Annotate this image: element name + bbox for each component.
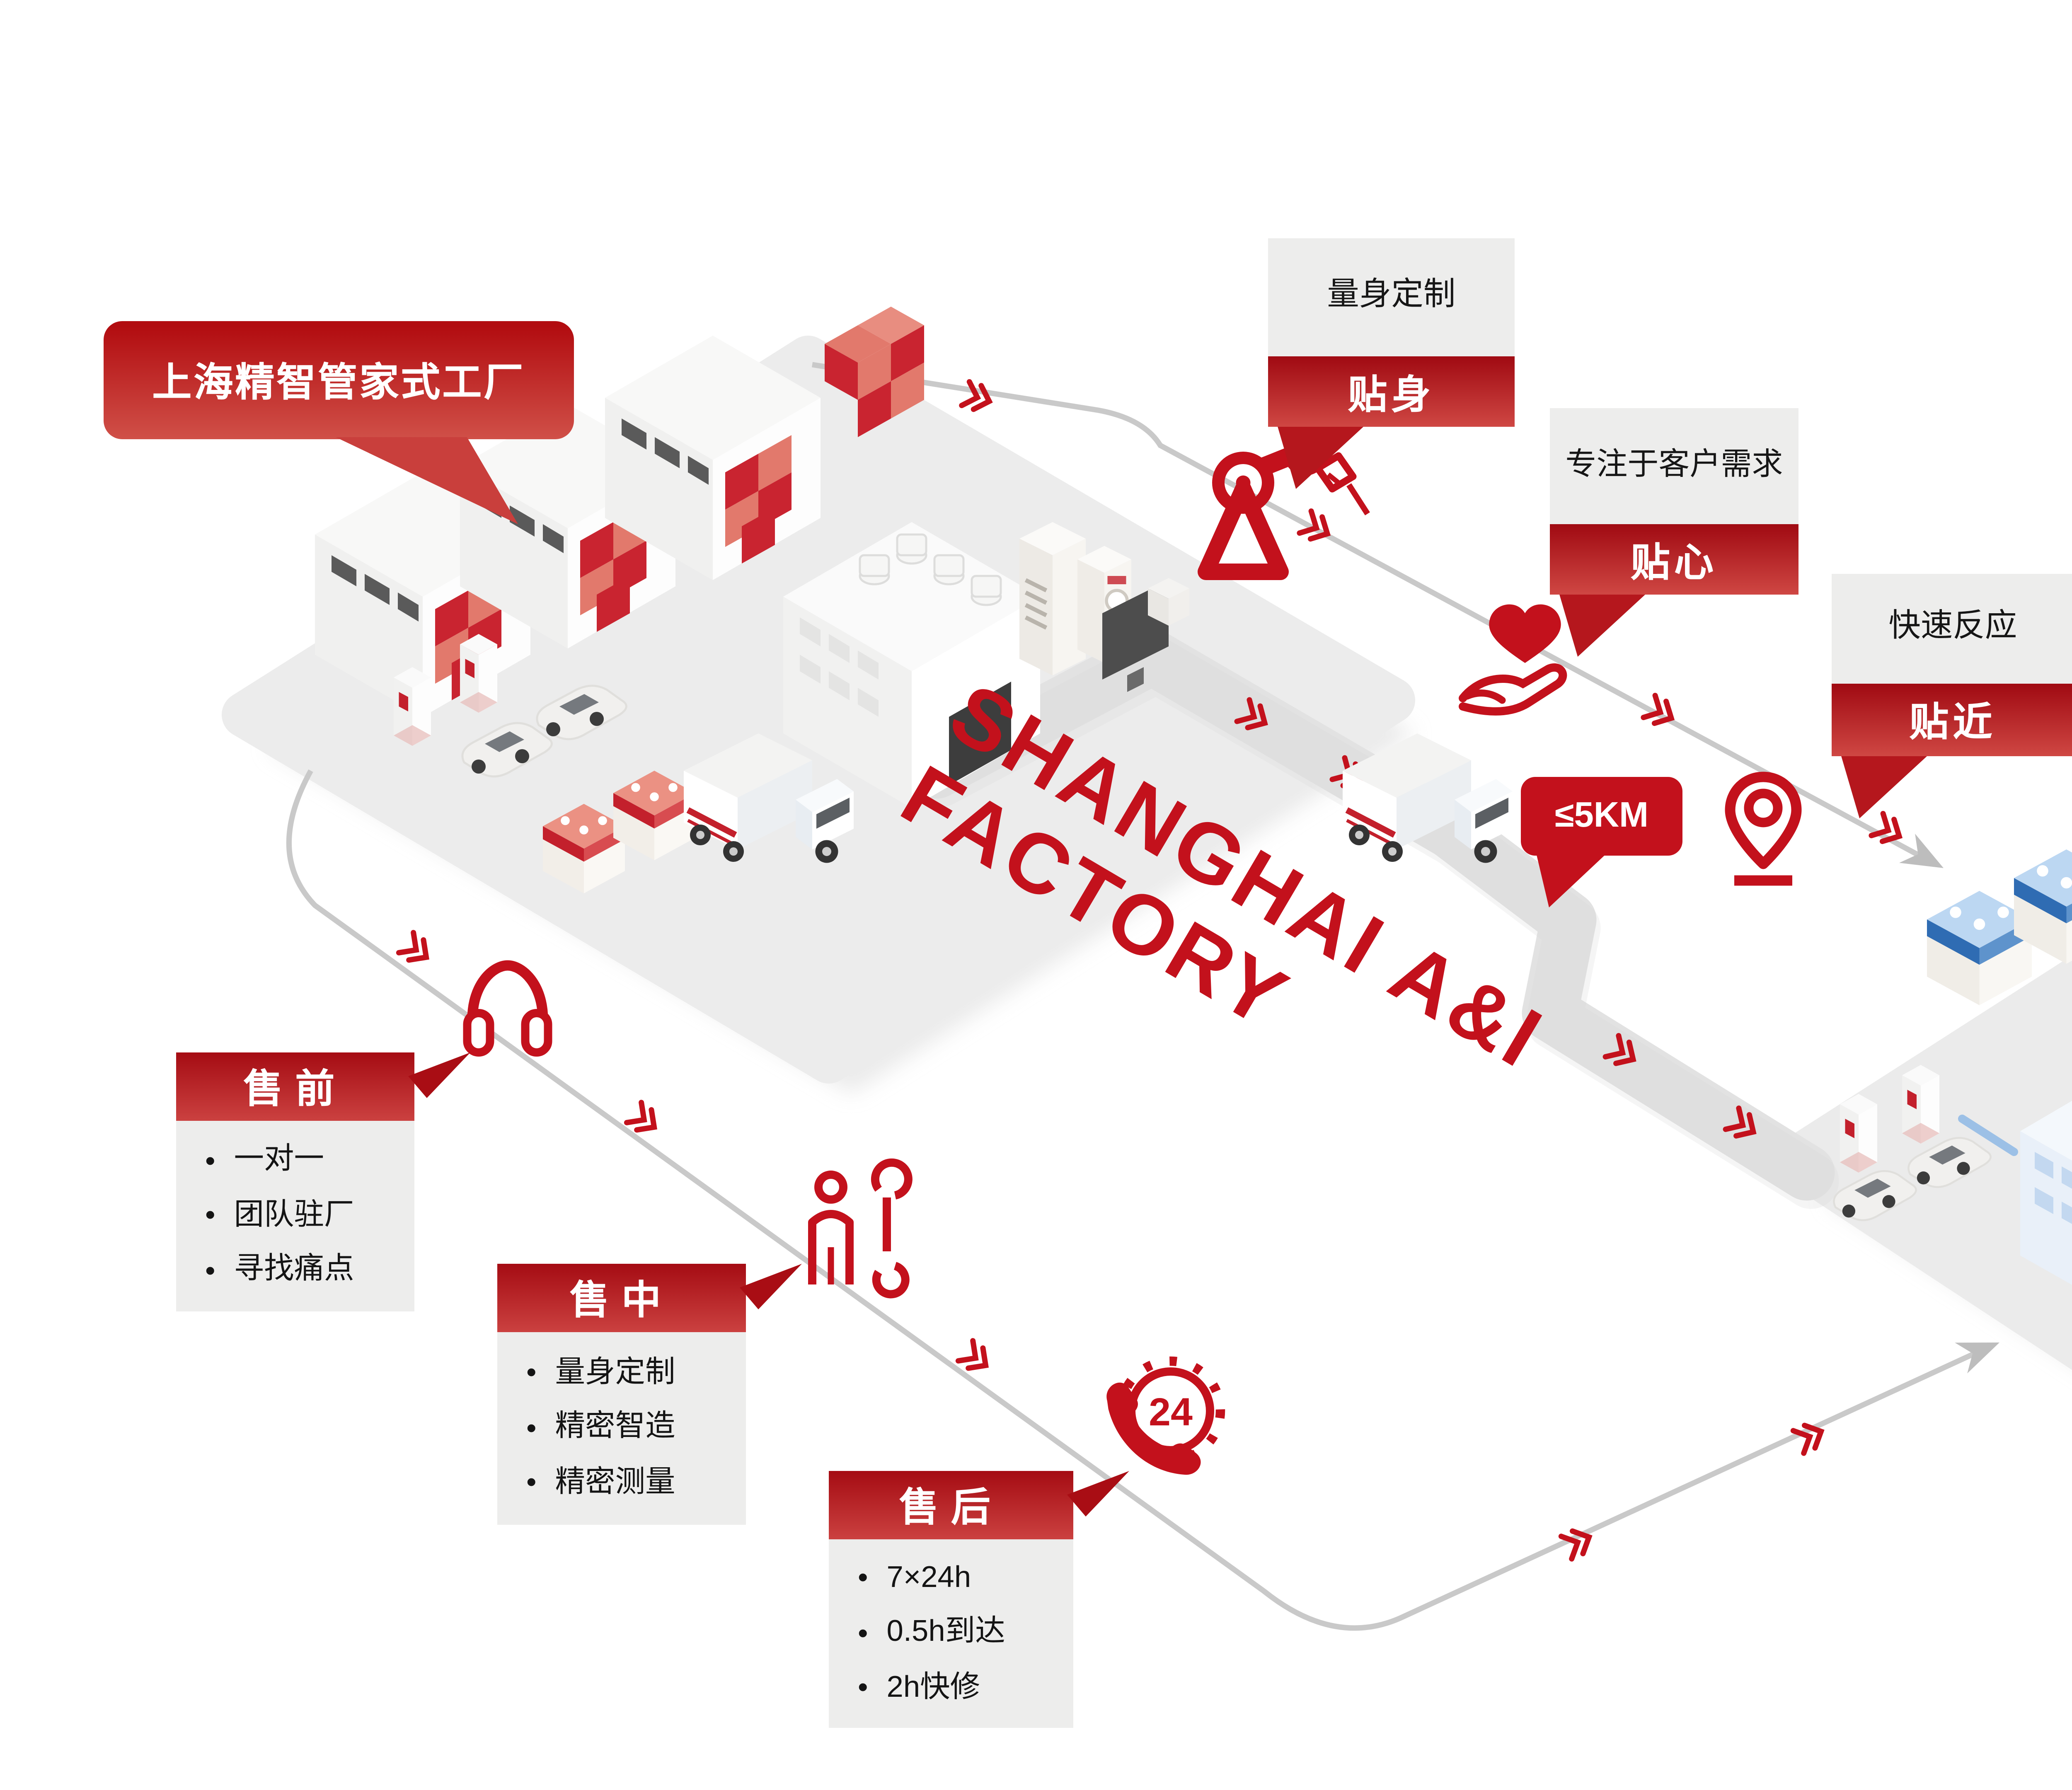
feature-tag: 贴近 [1832, 684, 2072, 756]
list-item: 量身定制 [526, 1350, 746, 1397]
phone-24h-icon: 24 [1105, 1361, 1220, 1484]
list-item: 2h快修 [858, 1665, 1073, 1712]
feature-tag: 贴身 [1268, 356, 1515, 427]
stage-header: 售后 [829, 1471, 1073, 1539]
infographic-canvas: 24 上海精智管家式工厂 客户 量身定制 贴身 专注于客户需求 贴心 快速反应 … [0, 0, 2072, 1790]
stage-list: 量身定制 精密智造 精密测量 [497, 1332, 746, 1525]
stage-title: 售前 [243, 1059, 347, 1115]
stage-title: 售中 [570, 1270, 673, 1326]
feature-title: 量身定制 [1268, 238, 1515, 356]
stage-title: 售后 [899, 1477, 1003, 1533]
feature-title: 快速反应 [1832, 574, 2072, 684]
stage-card-aftersale: 售后 7×24h 0.5h到达 2h快修 [829, 1471, 1073, 1728]
feature-label-customer-needs: 专注于客户需求 贴心 [1550, 408, 1798, 595]
feature-label-fast-response: 快速反应 贴近 [1832, 574, 2072, 756]
stage-list: 一对一 团队驻厂 寻找痛点 [176, 1121, 414, 1311]
stage-list: 7×24h 0.5h到达 2h快修 [829, 1539, 1073, 1728]
list-item: 寻找痛点 [205, 1248, 414, 1294]
stage-header: 售前 [176, 1052, 414, 1121]
list-item: 0.5h到达 [858, 1610, 1073, 1657]
list-item: 精密智造 [526, 1405, 746, 1451]
heart-in-hand-icon [1463, 605, 1563, 711]
location-pin-icon [1730, 777, 1796, 880]
headphones-icon [467, 965, 548, 1052]
feature-label-custom-fit: 量身定制 贴身 [1268, 238, 1515, 427]
feature-tag: 贴心 [1550, 524, 1798, 595]
factory-bubble: 上海精智管家式工厂 [104, 321, 574, 439]
list-item: 7×24h [858, 1555, 1073, 1602]
distance-badge-label: ≤5KM [1555, 796, 1648, 837]
flow-arrowhead-icon [1899, 834, 1951, 883]
feature-title: 专注于客户需求 [1550, 408, 1798, 524]
distance-badge: ≤5KM [1521, 777, 1682, 856]
svg-text:24: 24 [1149, 1390, 1193, 1434]
stage-header: 售中 [497, 1264, 746, 1332]
stage-card-presale: 售前 一对一 团队驻厂 寻找痛点 [176, 1052, 414, 1311]
list-item: 一对一 [205, 1138, 414, 1184]
flow-arrowhead-icon [1955, 1327, 2006, 1374]
factory-bubble-label: 上海精智管家式工厂 [152, 352, 525, 408]
list-item: 团队驻厂 [205, 1193, 414, 1239]
list-item: 精密测量 [526, 1460, 746, 1507]
stage-card-midsale: 售中 量身定制 精密智造 精密测量 [497, 1264, 746, 1525]
